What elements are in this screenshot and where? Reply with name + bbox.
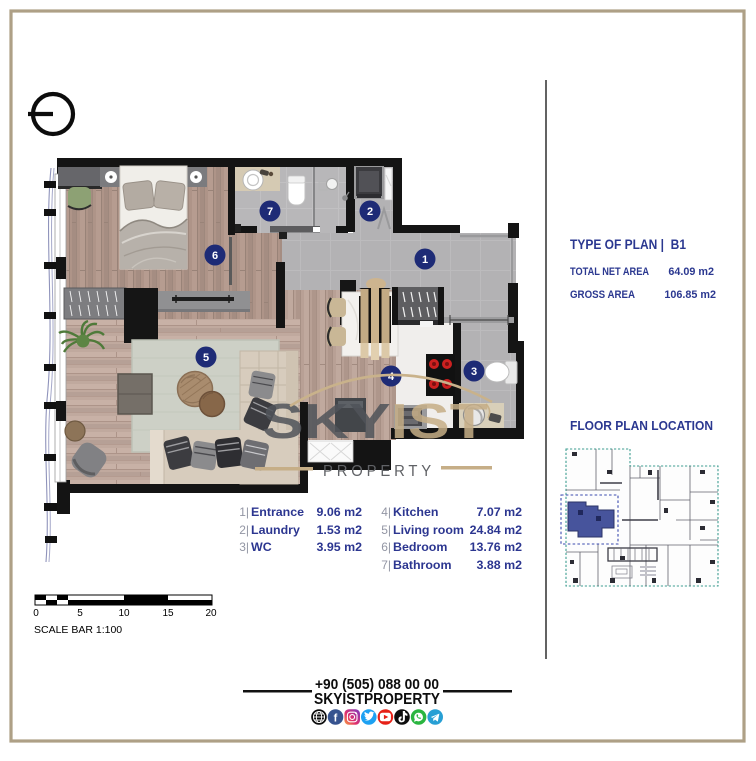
svg-text:10: 10	[118, 608, 130, 619]
svg-text:Bedroom: Bedroom	[393, 540, 447, 554]
svg-text:Entrance: Entrance	[251, 505, 304, 519]
svg-text:Kitchen: Kitchen	[393, 505, 438, 519]
svg-text:FLOOR PLAN LOCATION: FLOOR PLAN LOCATION	[570, 418, 713, 433]
svg-text:3: 3	[471, 366, 477, 378]
svg-text:5|: 5|	[381, 523, 391, 537]
svg-text:Bathroom: Bathroom	[393, 558, 452, 572]
svg-text:f: f	[334, 713, 338, 725]
svg-text:2: 2	[367, 206, 373, 218]
svg-text:3.88 m2: 3.88 m2	[477, 558, 523, 572]
svg-text:9.06 m2: 9.06 m2	[317, 505, 363, 519]
svg-text:3|: 3|	[239, 540, 249, 554]
svg-text:GROSS AREA: GROSS AREA	[570, 289, 635, 301]
svg-text:WC: WC	[251, 540, 272, 554]
svg-text:7: 7	[267, 206, 273, 218]
svg-text:20: 20	[205, 608, 217, 619]
svg-text:4|: 4|	[381, 505, 391, 519]
svg-text:1|: 1|	[239, 505, 249, 519]
svg-text:Laundry: Laundry	[251, 523, 300, 537]
svg-text:Living room: Living room	[393, 523, 464, 537]
svg-text:4: 4	[388, 371, 395, 383]
svg-text:0: 0	[33, 608, 39, 619]
svg-text:64.09 m2: 64.09 m2	[668, 266, 714, 278]
svg-text:SKYISTPROPERTY: SKYISTPROPERTY	[314, 691, 441, 708]
svg-text:5: 5	[203, 352, 209, 364]
svg-text:13.76 m2: 13.76 m2	[470, 540, 522, 554]
svg-text:PROPERTY: PROPERTY	[323, 463, 435, 480]
svg-text:3.95 m2: 3.95 m2	[317, 540, 363, 554]
svg-text:SCALE BAR 1:100: SCALE BAR 1:100	[34, 624, 122, 636]
svg-text:15: 15	[162, 608, 174, 619]
svg-text:5: 5	[77, 608, 83, 619]
svg-text:1: 1	[422, 254, 428, 266]
svg-text:6: 6	[212, 250, 218, 262]
svg-text:24.84 m2: 24.84 m2	[470, 523, 522, 537]
svg-text:2|: 2|	[239, 523, 249, 537]
svg-text:TOTAL NET AREA: TOTAL NET AREA	[570, 266, 649, 278]
svg-text:7|: 7|	[381, 558, 391, 572]
svg-text:7.07 m2: 7.07 m2	[477, 505, 523, 519]
svg-text:6|: 6|	[381, 540, 391, 554]
svg-text:106.85 m2: 106.85 m2	[664, 289, 716, 301]
svg-text:1.53 m2: 1.53 m2	[317, 523, 363, 537]
svg-text:TYPE OF PLAN | B1: TYPE OF PLAN | B1	[570, 237, 686, 252]
